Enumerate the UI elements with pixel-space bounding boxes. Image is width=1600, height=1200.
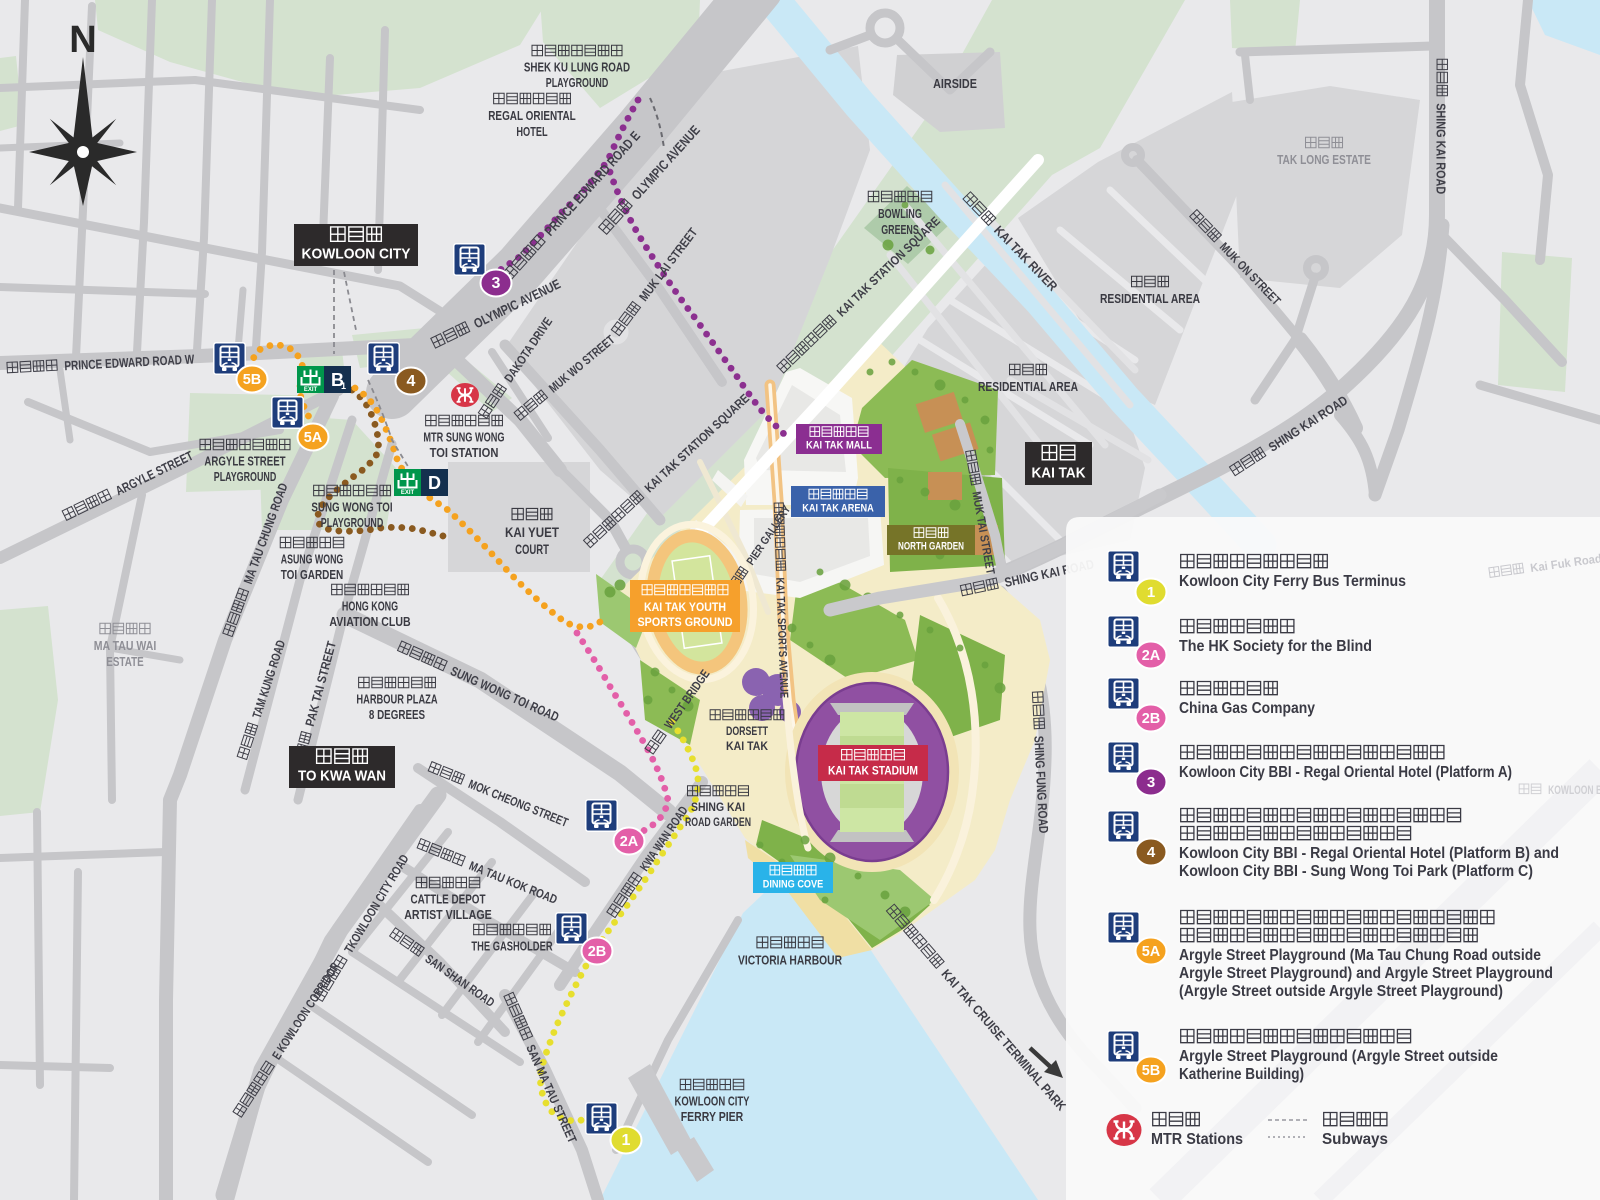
svg-text:KOWLOON CITY: KOWLOON CITY — [675, 1095, 750, 1109]
svg-text:ROAD GARDEN: ROAD GARDEN — [685, 815, 751, 829]
svg-text:ESTATE: ESTATE — [106, 655, 144, 669]
svg-text:HOTEL: HOTEL — [516, 125, 547, 139]
svg-text:5B: 5B — [1142, 1063, 1161, 1079]
svg-text:1: 1 — [1147, 584, 1155, 601]
svg-text:Kowloon City BBI - Regal Orien: Kowloon City BBI - Regal Oriental Hotel … — [1179, 845, 1559, 862]
svg-text:AVIATION CLUB: AVIATION CLUB — [329, 615, 410, 629]
svg-text:GREENS: GREENS — [881, 223, 919, 237]
svg-text:5A: 5A — [304, 430, 323, 446]
svg-text:DINING COVE: DINING COVE — [763, 878, 824, 890]
svg-text:KAI TAK STADIUM: KAI TAK STADIUM — [828, 764, 918, 778]
svg-text:KAI TAK MALL: KAI TAK MALL — [806, 440, 872, 452]
svg-text:EXIT: EXIT — [304, 387, 318, 393]
svg-text:Argyle Street Playground) and: Argyle Street Playground) and Argyle Str… — [1179, 965, 1553, 982]
svg-text:KAI TAK: KAI TAK — [726, 739, 768, 753]
svg-text:SPORTS GROUND: SPORTS GROUND — [638, 617, 733, 629]
svg-text:2A: 2A — [620, 834, 639, 850]
svg-text:THE GASHOLDER: THE GASHOLDER — [471, 940, 552, 954]
svg-text:D: D — [428, 473, 441, 493]
svg-text:HONG KONG: HONG KONG — [342, 600, 398, 614]
svg-text:SHING KAI ROAD: SHING KAI ROAD — [1434, 103, 1449, 194]
svg-text:China Gas Company: China Gas Company — [1179, 700, 1315, 717]
svg-text:MTR SUNG WONG: MTR SUNG WONG — [423, 431, 504, 445]
svg-text:N: N — [69, 19, 96, 61]
svg-text:SHEK KU LUNG ROAD: SHEK KU LUNG ROAD — [524, 61, 630, 75]
svg-text:ASUNG WONG: ASUNG WONG — [281, 553, 344, 567]
svg-text:Subways: Subways — [1322, 1131, 1388, 1148]
svg-text:TAK LONG ESTATE: TAK LONG ESTATE — [1277, 153, 1371, 167]
svg-text:ARGYLE STREET: ARGYLE STREET — [204, 455, 285, 469]
svg-text:2A: 2A — [1142, 648, 1161, 664]
svg-text:Kowloon City Ferry Bus Terminu: Kowloon City Ferry Bus Terminus — [1179, 573, 1406, 590]
svg-text:PLAYGROUND: PLAYGROUND — [214, 470, 277, 484]
svg-text:KAI TAK: KAI TAK — [1032, 464, 1086, 481]
svg-text:3: 3 — [492, 275, 501, 292]
svg-text:(Argyle Street outside Argyle: (Argyle Street outside Argyle Street Pla… — [1179, 983, 1503, 1000]
svg-text:DORSETT: DORSETT — [726, 724, 768, 738]
svg-text:8 DEGREES: 8 DEGREES — [369, 708, 425, 722]
svg-text:TOI GARDEN: TOI GARDEN — [281, 568, 344, 582]
svg-text:PLAYGROUND: PLAYGROUND — [321, 516, 384, 530]
svg-text:NORTH GARDEN: NORTH GARDEN — [898, 541, 964, 553]
svg-text:5A: 5A — [1142, 944, 1161, 960]
svg-text:COURT: COURT — [515, 542, 549, 557]
svg-text:FERRY PIER: FERRY PIER — [681, 1110, 744, 1124]
svg-text:MTR Stations: MTR Stations — [1151, 1131, 1243, 1148]
svg-text:HARBOUR PLAZA: HARBOUR PLAZA — [356, 693, 437, 707]
svg-text:BOWLING: BOWLING — [878, 207, 922, 221]
svg-text:KOWLOON B: KOWLOON B — [1548, 783, 1600, 797]
svg-text:RESIDENTIAL AREA: RESIDENTIAL AREA — [1100, 292, 1200, 306]
svg-text:2B: 2B — [588, 944, 607, 960]
svg-text:ARTIST VILLAGE: ARTIST VILLAGE — [404, 908, 492, 922]
svg-text:4: 4 — [407, 373, 416, 390]
svg-text:1: 1 — [341, 381, 346, 391]
svg-text:EXIT: EXIT — [401, 490, 415, 496]
svg-text:4: 4 — [1147, 844, 1156, 861]
svg-text:3: 3 — [1147, 774, 1155, 791]
svg-text:Argyle Street Playground (Ma T: Argyle Street Playground (Ma Tau Chung R… — [1179, 947, 1541, 964]
svg-text:AIRSIDE: AIRSIDE — [933, 77, 977, 91]
svg-text:5B: 5B — [243, 372, 262, 388]
svg-text:TOI STATION: TOI STATION — [430, 446, 499, 460]
svg-text:Kowloon City BBI - Regal Orien: Kowloon City BBI - Regal Oriental Hotel … — [1179, 764, 1512, 781]
svg-text:CATTLE DEPOT: CATTLE DEPOT — [411, 893, 486, 907]
svg-text:KOWLOON CITY: KOWLOON CITY — [302, 245, 411, 262]
svg-text:SUNG WONG TOI: SUNG WONG TOI — [311, 501, 392, 515]
svg-text:KAI TAK ARENA: KAI TAK ARENA — [802, 502, 874, 514]
svg-text:The HK Society for the Blind: The HK Society for the Blind — [1179, 638, 1372, 655]
svg-text:KAI TAK YOUTH: KAI TAK YOUTH — [644, 602, 726, 614]
svg-text:Argyle Street Playground (Argy: Argyle Street Playground (Argyle Street … — [1179, 1048, 1498, 1065]
svg-text:SHING KAI: SHING KAI — [691, 800, 745, 814]
svg-text:2B: 2B — [1142, 711, 1161, 727]
svg-text:PLAYGROUND: PLAYGROUND — [546, 76, 609, 90]
svg-text:RESIDENTIAL AREA: RESIDENTIAL AREA — [978, 380, 1078, 394]
svg-text:REGAL ORIENTAL: REGAL ORIENTAL — [488, 109, 576, 123]
svg-text:KAI YUET: KAI YUET — [505, 525, 560, 540]
svg-text:MA TAU WAI: MA TAU WAI — [94, 639, 157, 653]
svg-text:Katherine Building): Katherine Building) — [1179, 1066, 1304, 1083]
svg-text:VICTORIA HARBOUR: VICTORIA HARBOUR — [738, 953, 842, 968]
svg-text:Kowloon City BBI - Sung Wong T: Kowloon City BBI - Sung Wong Toi Park (P… — [1179, 863, 1533, 880]
svg-text:1: 1 — [622, 1132, 631, 1149]
svg-text:TO KWA WAN: TO KWA WAN — [298, 767, 386, 784]
